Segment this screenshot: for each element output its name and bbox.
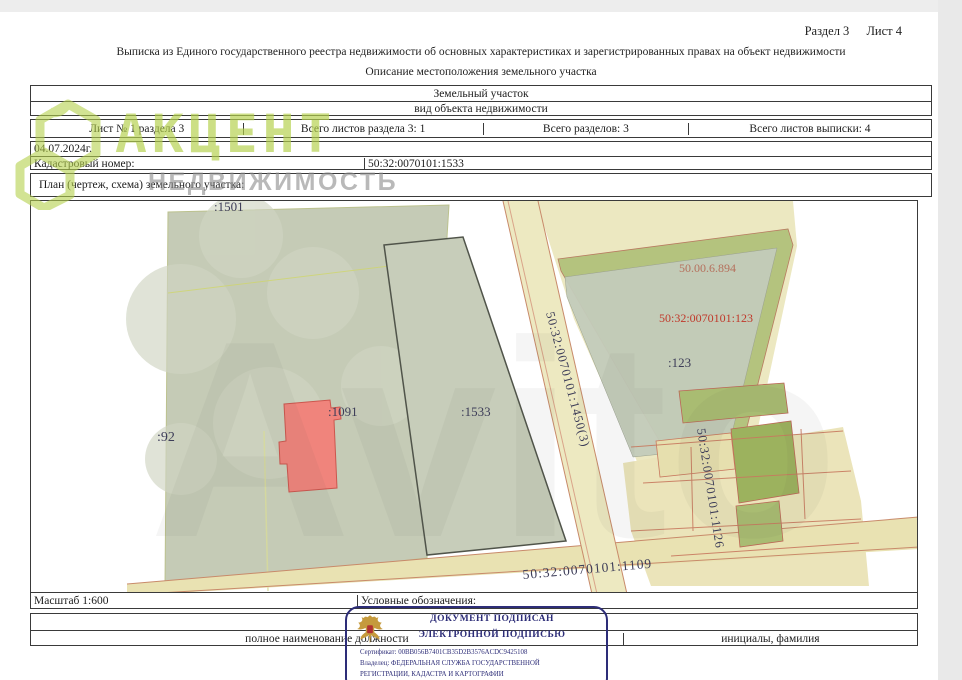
extract-date: 04.07.2024г. bbox=[31, 143, 931, 155]
object-type: Земельный участок bbox=[31, 88, 931, 100]
name-caption: инициалы, фамилия bbox=[623, 633, 917, 645]
sheet-cell: Всего разделов: 3 bbox=[483, 123, 688, 135]
coat-of-arms-icon bbox=[356, 613, 384, 645]
document-page: Раздел 3 Лист 4 Выписка из Единого госуд… bbox=[0, 0, 962, 680]
cadastral-number-label: Кадастровый номер: bbox=[31, 158, 364, 170]
stamp-certificate: Сертификат: 00BB056B7401CB35D2B3576ACDC9… bbox=[360, 649, 600, 656]
header-corner: Раздел 3 Лист 4 bbox=[791, 24, 902, 39]
stamp-owner-line1: Владелец: ФЕДЕРАЛЬНАЯ СЛУЖБА ГОСУДАРСТВЕ… bbox=[360, 660, 600, 667]
sheets-table: Лист № 1 раздела 3 Всего листов раздела … bbox=[30, 119, 932, 138]
label-parcel-1533: :1533 bbox=[461, 404, 491, 419]
label-area-note: 50.00.6.894 bbox=[679, 261, 736, 275]
object-type-caption: вид объекта недвижимости bbox=[31, 103, 931, 115]
sheet-cell: Лист № 1 раздела 3 bbox=[31, 123, 243, 135]
document-subtitle: Описание местоположения земельного участ… bbox=[40, 66, 922, 78]
stamp-line1: ДОКУМЕНТ ПОДПИСАН bbox=[387, 614, 597, 624]
section-label: Раздел 3 bbox=[805, 24, 850, 38]
cadastral-number-value: 50:32:0070101:1533 bbox=[364, 158, 931, 170]
label-parcel-1091: :1091 bbox=[328, 404, 358, 419]
cadastral-map-svg: Avito :1501 :92 :1091 :1533 :123 50:32:0… bbox=[31, 201, 918, 593]
scan-edge-top bbox=[0, 0, 962, 12]
label-cad-123: 50:32:0070101:123 bbox=[659, 311, 753, 325]
document-title: Выписка из Единого государственного реес… bbox=[40, 46, 922, 58]
meta-table: 04.07.2024г. Кадастровый номер: 50:32:00… bbox=[30, 141, 932, 170]
scan-edge-right bbox=[938, 0, 962, 680]
label-parcel-1501: :1501 bbox=[214, 201, 244, 214]
digital-signature-stamp: ДОКУМЕНТ ПОДПИСАН ЭЛЕКТРОННОЙ ПОДПИСЬЮ С… bbox=[345, 606, 608, 680]
sheet-label: Лист 4 bbox=[866, 24, 902, 38]
plan-header: План (чертеж, схема) земельного участка: bbox=[31, 179, 931, 191]
object-type-table: Земельный участок вид объекта недвижимос… bbox=[30, 85, 932, 116]
label-parcel-123: :123 bbox=[668, 355, 691, 370]
stamp-owner-line2: РЕГИСТРАЦИИ, КАДАСТРА И КАРТОГРАФИИ bbox=[360, 671, 600, 678]
label-parcel-92: :92 bbox=[157, 430, 175, 445]
sheet-cell: Всего листов раздела 3: 1 bbox=[243, 123, 483, 135]
cadastral-map: Avito :1501 :92 :1091 :1533 :123 50:32:0… bbox=[30, 200, 918, 593]
legend-label: Условные обозначения: bbox=[357, 595, 695, 607]
stamp-line2: ЭЛЕКТРОННОЙ ПОДПИСЬЮ bbox=[387, 630, 597, 640]
avito-watermark: Avito bbox=[149, 284, 839, 593]
scale-label: Масштаб 1:600 bbox=[31, 595, 357, 607]
sheet-cell: Всего листов выписки: 4 bbox=[688, 123, 931, 135]
plan-header-table: План (чертеж, схема) земельного участка: bbox=[30, 173, 932, 197]
